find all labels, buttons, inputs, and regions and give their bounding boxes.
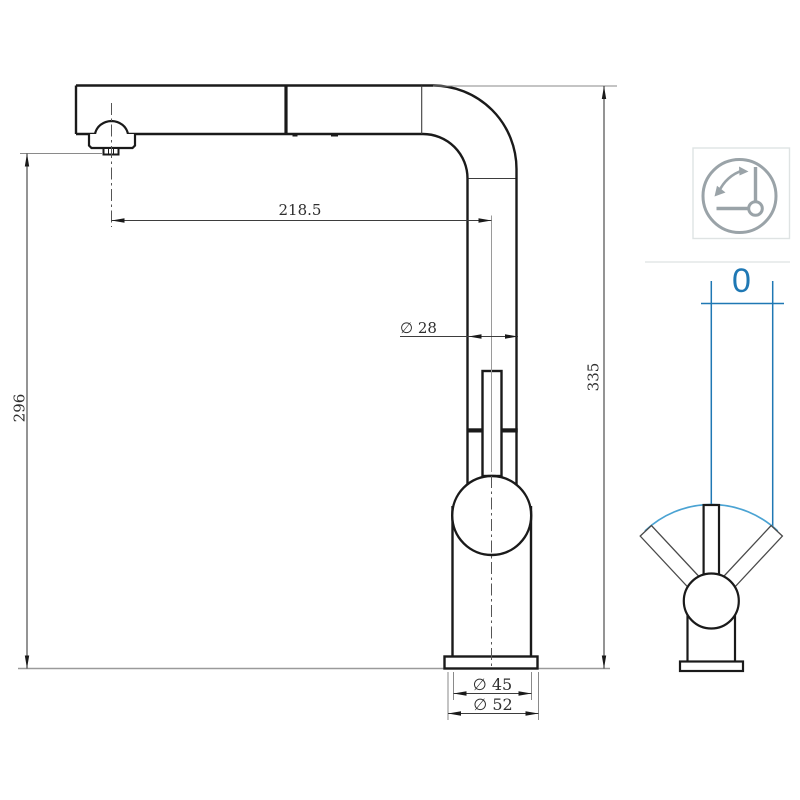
dim-arrow bbox=[454, 691, 467, 695]
dim-label-body-diameter: ∅ 45 bbox=[473, 675, 512, 694]
dim-label-base-diameter: ∅ 52 bbox=[473, 695, 512, 714]
seam-tick-left bbox=[293, 133, 298, 137]
dim-arrow bbox=[602, 86, 606, 99]
dim-arrow bbox=[448, 711, 461, 715]
dim-arrow bbox=[602, 656, 606, 669]
icon-pivot-circle bbox=[749, 202, 763, 216]
swivel-icon-badge[interactable] bbox=[693, 148, 790, 239]
dim-label-spout-reach: 218.5 bbox=[279, 201, 322, 219]
joint-band-left bbox=[467, 428, 483, 432]
faucet-main-view: 218.5 ∅ 28 296 335 ∅ 45 bbox=[11, 86, 618, 721]
spout-inner-bend bbox=[423, 134, 468, 179]
dim-arrow bbox=[25, 154, 29, 167]
dim-label-total-height: 335 bbox=[585, 363, 603, 392]
faucet-side-view: 0 bbox=[640, 262, 784, 671]
joint-band-right bbox=[502, 428, 518, 432]
dim-arrow bbox=[469, 334, 482, 338]
lever-position-right bbox=[724, 526, 783, 587]
dim-arrow bbox=[112, 218, 125, 222]
dim-arrow bbox=[25, 656, 29, 669]
dim-label-pipe-diameter: ∅ 28 bbox=[400, 319, 437, 337]
technical-drawing-page: 218.5 ∅ 28 296 335 ∅ 45 bbox=[0, 0, 800, 800]
spout-outer-bend bbox=[433, 86, 517, 170]
dimensions: 218.5 ∅ 28 296 335 ∅ 45 bbox=[11, 86, 618, 720]
swivel-dimension: 0 bbox=[701, 262, 784, 529]
dim-label-outlet-height: 296 bbox=[11, 394, 29, 423]
base-flange-front bbox=[680, 662, 743, 672]
swivel-angle-value: 0 bbox=[732, 262, 751, 300]
lever-handle-front bbox=[704, 505, 719, 575]
lever-position-left bbox=[640, 526, 699, 587]
ball-joint-front bbox=[684, 574, 739, 629]
dim-arrow bbox=[526, 711, 539, 715]
dim-arrow bbox=[479, 218, 492, 222]
seam-tick-right bbox=[331, 133, 338, 137]
faucet-drawing-canvas: 218.5 ∅ 28 296 335 ∅ 45 bbox=[0, 0, 800, 800]
dim-arrow bbox=[519, 691, 532, 695]
